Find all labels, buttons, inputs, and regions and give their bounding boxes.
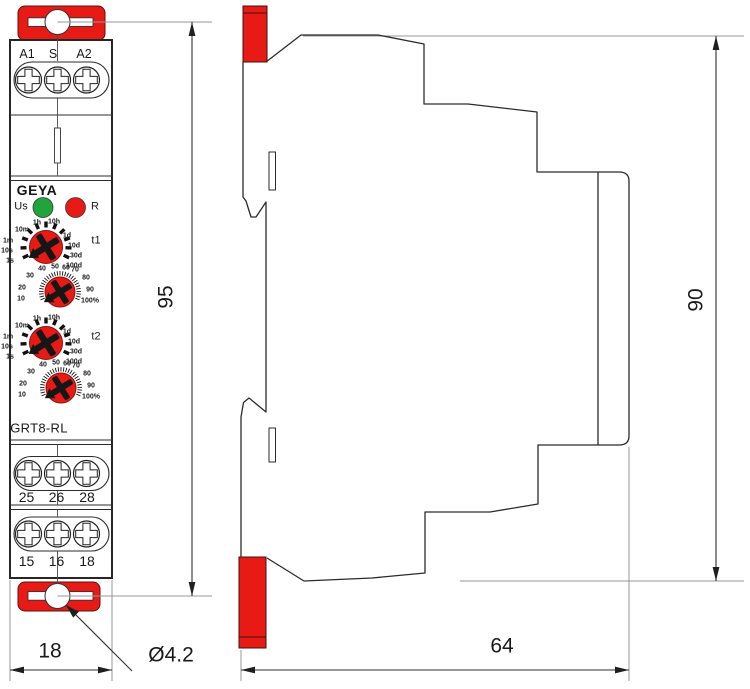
side-slot-top [269, 152, 276, 190]
terminal-screw [74, 67, 100, 93]
hole-leader-line [66, 605, 132, 671]
din-clip-top [243, 6, 267, 62]
terminal-screw [16, 461, 42, 487]
side-profile-back [241, 62, 266, 557]
dimension-lines [10, 22, 719, 673]
terminal-screw [16, 521, 42, 547]
front-view-outline [10, 40, 112, 578]
terminal-screw [45, 67, 71, 93]
side-view [239, 6, 629, 648]
din-clip-bottom [239, 557, 266, 648]
side-slot-bottom [269, 428, 276, 462]
front-view-body [10, 35, 112, 585]
terminal-screw [74, 521, 100, 547]
front-recess-slot [55, 128, 61, 163]
terminal-screw [45, 521, 71, 547]
side-profile-outer [266, 35, 629, 581]
terminal-screw [74, 461, 100, 487]
power-led [33, 198, 53, 218]
terminal-screw [16, 67, 42, 93]
technical-drawing: GEYA A1 S A2 Us R t1 t2 GRT8-RL 25 26 28… [0, 0, 750, 689]
reset-led [66, 198, 86, 218]
extension-lines [10, 22, 744, 681]
terminal-screw [45, 461, 71, 487]
drawing-linework [0, 0, 750, 689]
side-profile [241, 35, 629, 581]
